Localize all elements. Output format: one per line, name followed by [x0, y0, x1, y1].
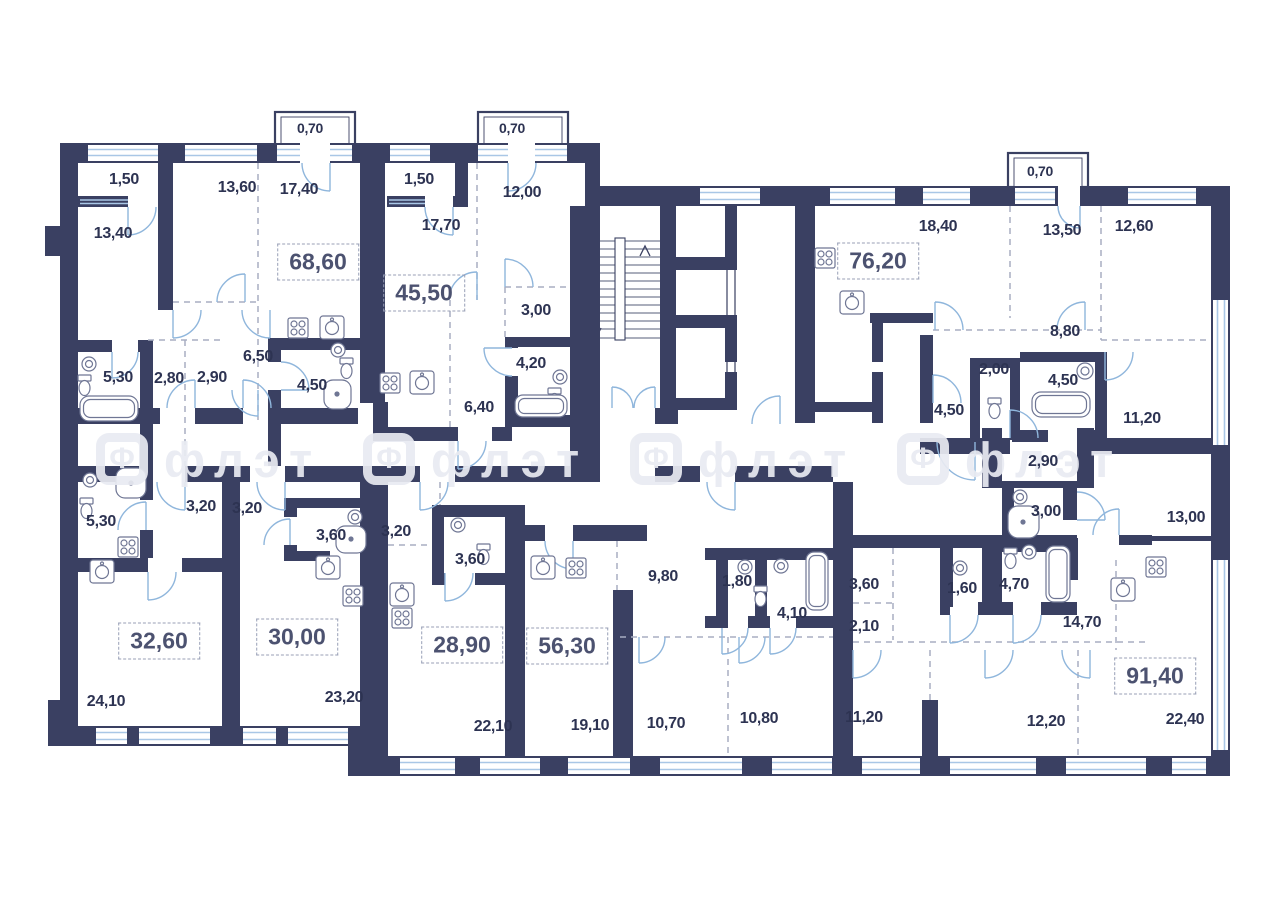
windows: [80, 142, 1228, 774]
dashed-partitions: [148, 163, 1211, 756]
stairs-up-arrow: [640, 246, 650, 256]
walls: [45, 143, 1230, 776]
stairs: [591, 238, 660, 340]
floor-plan-page: ФфлэтФфлэтФфлэтФфлэт 68,6045,5076,2032,6…: [0, 0, 1280, 905]
floor-plan-drawing: [0, 0, 1280, 905]
